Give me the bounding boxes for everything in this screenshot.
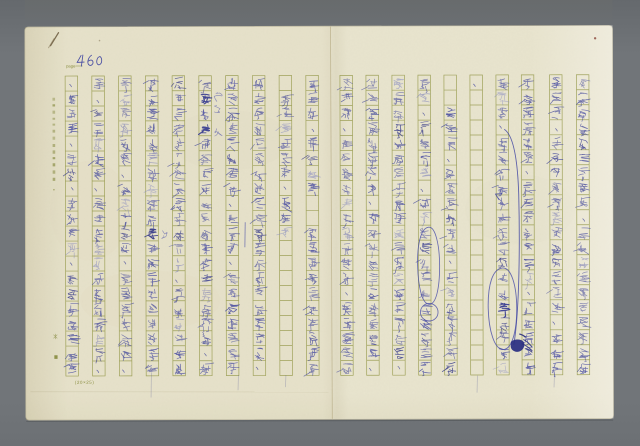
svg-text:page: page (66, 63, 76, 68)
svg-text:(20×25): (20×25) (75, 380, 94, 385)
